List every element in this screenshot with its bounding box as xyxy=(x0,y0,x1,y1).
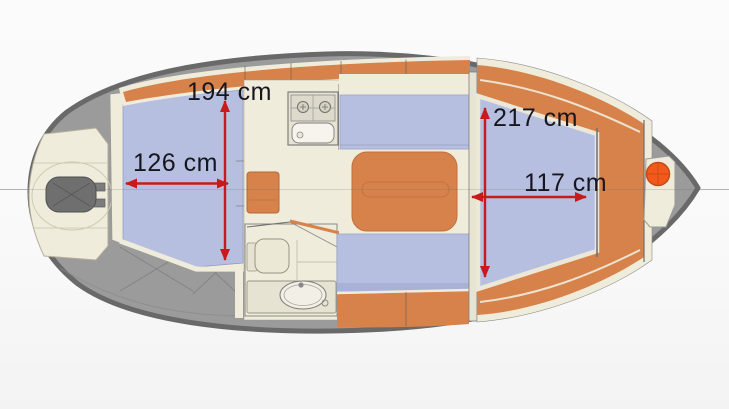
stern-platform xyxy=(29,128,112,260)
cockpit-bathroom-wall xyxy=(235,268,243,318)
deck-wood xyxy=(337,291,469,327)
side-deck-bottom xyxy=(337,290,469,327)
settee-bottom xyxy=(337,234,470,291)
salon xyxy=(337,74,477,300)
toilet xyxy=(255,239,289,273)
galley-table xyxy=(247,172,279,213)
boat-floorplan: 194 cm 126 cm 217 cm 117 cm xyxy=(0,0,729,409)
faucet-icon xyxy=(298,282,303,287)
sink-drain xyxy=(297,132,303,138)
dimension-label-aft-width: 126 cm xyxy=(133,149,218,177)
dimension-label-aft-length: 194 cm xyxy=(187,78,272,106)
boat-floorplan-stage: 194 cm 126 cm 217 cm 117 cm xyxy=(0,0,729,409)
foredeck xyxy=(644,156,675,227)
dimension-label-bow-width: 117 cm xyxy=(524,169,607,197)
bathroom xyxy=(245,221,348,316)
salon-table xyxy=(352,152,457,231)
settee-top xyxy=(340,95,470,149)
dimension-label-bow-length: 217 cm xyxy=(493,104,578,132)
